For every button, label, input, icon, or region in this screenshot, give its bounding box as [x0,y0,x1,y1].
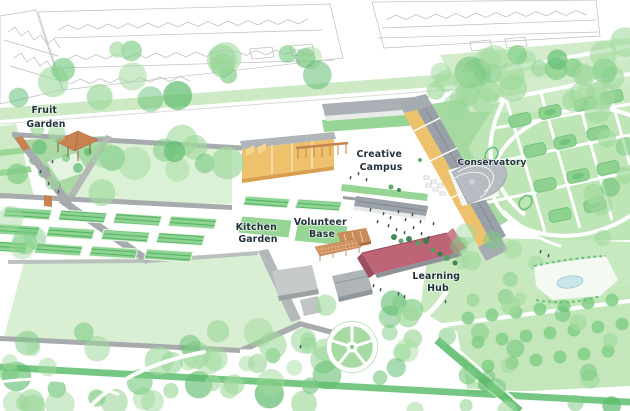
conservatory-label: Conservatory [457,158,526,168]
garden-roundel [326,321,378,373]
kitchen-garden-label: Kitchen Garden [236,222,281,245]
masterplan-illustration: Fruit Garden Creative Campus Conservator… [0,0,630,411]
masterplan-svg: Fruit Garden Creative Campus Conservator… [0,0,630,411]
